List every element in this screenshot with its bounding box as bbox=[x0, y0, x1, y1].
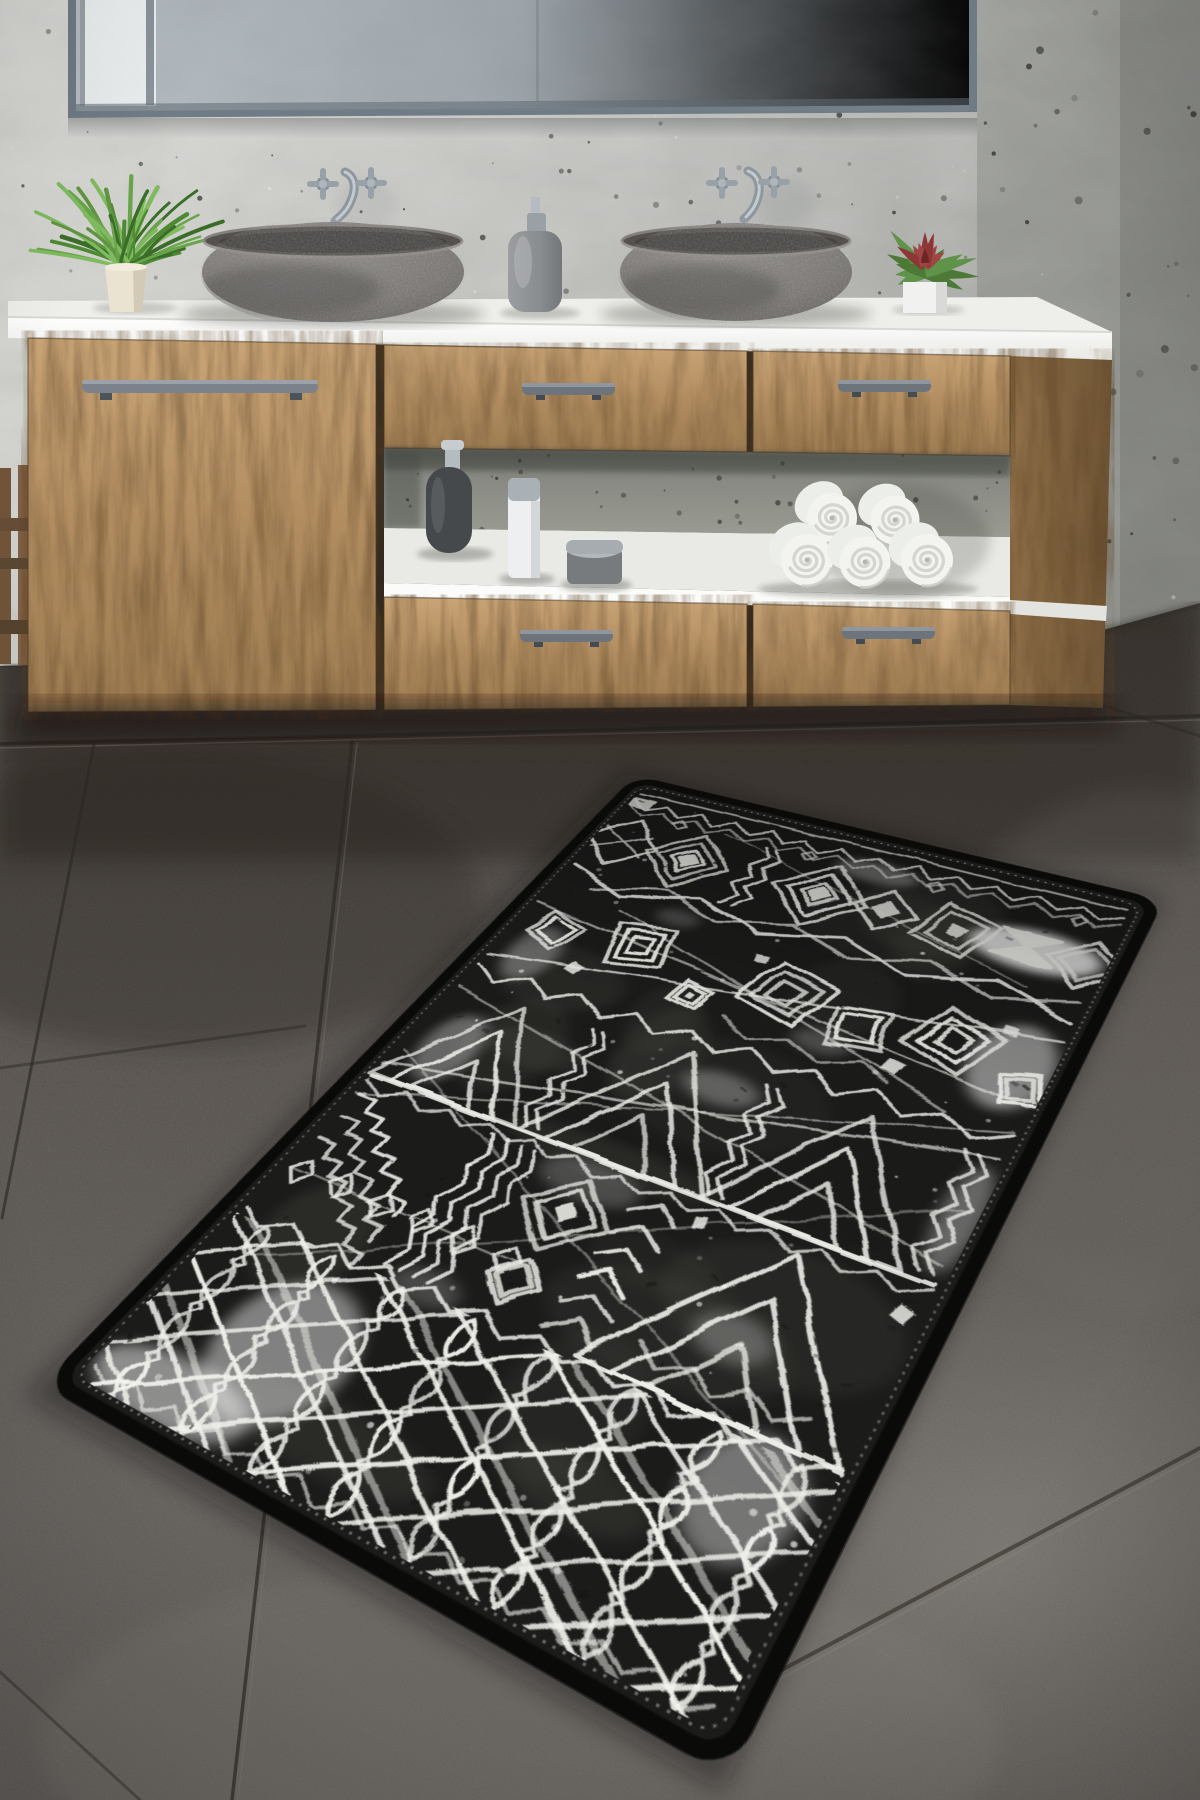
bathroom-photo: Modern bathroom product photo: floating … bbox=[0, 0, 1200, 1800]
